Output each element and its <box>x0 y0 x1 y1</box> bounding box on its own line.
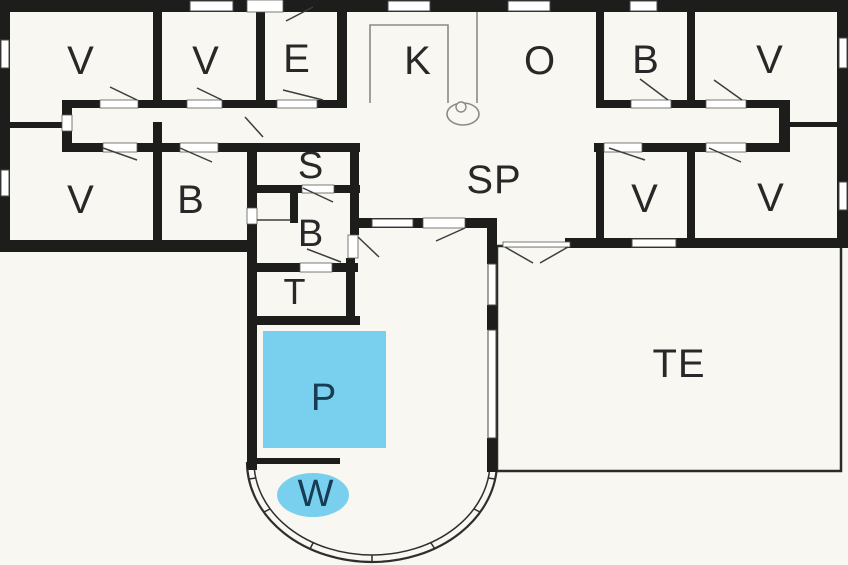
room-label-terrace: TE <box>652 344 705 384</box>
bay-window-mullion <box>249 478 256 479</box>
wall <box>250 185 302 193</box>
bay-window-mullion <box>488 478 495 479</box>
wall <box>290 193 298 223</box>
wall <box>222 100 277 108</box>
wall <box>671 100 706 108</box>
wall <box>565 238 848 248</box>
door-opening <box>247 208 257 224</box>
door-opening <box>631 100 671 108</box>
room-label-bedroom-5: V <box>631 179 659 219</box>
wall <box>218 143 252 152</box>
door-opening <box>247 0 283 12</box>
window <box>632 239 676 247</box>
window <box>839 38 847 68</box>
wall <box>487 218 497 264</box>
room-label-bathroom-1: B <box>632 40 660 80</box>
floor-plan-drawing <box>0 0 848 565</box>
room-label-bedroom-4: V <box>67 180 95 220</box>
door-opening <box>100 100 138 108</box>
window <box>630 1 657 11</box>
room-label-dining: O <box>524 41 556 81</box>
door-opening <box>187 100 222 108</box>
wall <box>153 0 162 100</box>
wall <box>317 100 347 108</box>
window <box>1 170 9 196</box>
wall <box>0 240 255 252</box>
wall <box>253 458 340 464</box>
door-opening <box>348 235 358 258</box>
wall <box>250 316 360 325</box>
wall <box>837 0 848 248</box>
window <box>488 330 496 438</box>
window <box>372 219 413 227</box>
room-label-sauna: S <box>298 147 324 185</box>
wall <box>0 0 10 250</box>
window <box>488 264 496 305</box>
wall <box>138 100 187 108</box>
door-opening <box>423 218 465 228</box>
floor-plan: VVEKOBVVBSBTSPVVPWTE <box>0 0 848 565</box>
wall <box>10 122 63 128</box>
wall <box>596 0 604 100</box>
door-opening <box>277 100 317 108</box>
room-label-living-room: SP <box>466 160 521 200</box>
room-label-whirlpool: W <box>298 475 335 513</box>
wall <box>687 0 695 100</box>
wall <box>687 143 695 240</box>
wall <box>642 143 706 152</box>
wall <box>596 143 604 240</box>
window <box>1 40 9 68</box>
room-label-bedroom-3: V <box>756 40 784 80</box>
room-label-bathroom-2: B <box>177 180 205 220</box>
room-label-bedroom-2: V <box>192 41 220 81</box>
window <box>508 1 550 11</box>
door-opening <box>103 143 137 152</box>
window <box>839 182 847 210</box>
room-label-kitchen: K <box>404 41 432 81</box>
room-label-bedroom-1: V <box>67 41 95 81</box>
door-opening <box>706 143 746 152</box>
room-label-toilet: T <box>284 274 307 310</box>
wall <box>790 122 837 127</box>
wall <box>487 305 497 330</box>
window <box>388 1 430 11</box>
wall <box>337 0 347 100</box>
wall <box>779 100 790 152</box>
door-opening <box>503 242 570 247</box>
room-label-pool: P <box>311 379 337 417</box>
wall <box>346 258 355 325</box>
window <box>190 1 233 11</box>
wall <box>596 100 631 108</box>
room-label-bathroom-3: B <box>298 215 324 253</box>
door-opening <box>62 115 72 131</box>
room-label-bedroom-6: V <box>757 178 785 218</box>
wall <box>256 0 265 100</box>
room-label-entrance: E <box>283 39 311 79</box>
door-opening <box>706 100 746 108</box>
wall <box>487 438 497 472</box>
wc-flush-icon <box>456 102 466 112</box>
wall <box>153 122 162 240</box>
